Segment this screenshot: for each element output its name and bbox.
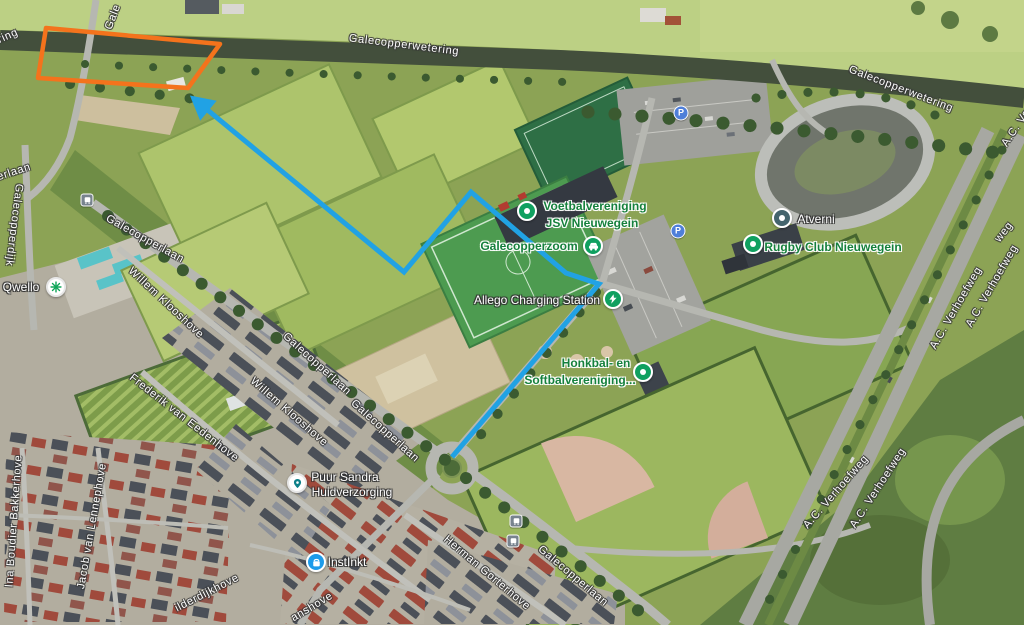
poi-pin-honkbal-icon[interactable] [633,362,653,382]
charging-bolt-icon[interactable] [603,289,623,309]
satellite-map-background [0,0,1024,625]
bus-stop-icon[interactable] [507,535,520,548]
parking-icon[interactable]: P [674,106,689,121]
instinkt-shop-icon[interactable] [306,552,326,572]
parking-icon[interactable]: P [671,224,686,239]
map-canvas[interactable]: Galecopperwetering Galecopperwetering ri… [0,0,1024,625]
qwello-charging-icon[interactable] [46,277,66,297]
poi-pin-atverni-icon[interactable] [772,208,792,228]
poi-pin-rugby-icon[interactable] [743,234,763,254]
poi-pin-jsv-icon[interactable] [517,201,537,221]
ev-charging-car-icon[interactable] [583,236,603,256]
puur-sandra-pin-icon[interactable] [287,473,307,493]
bus-stop-icon[interactable] [81,194,94,207]
bus-stop-icon[interactable] [510,515,523,528]
